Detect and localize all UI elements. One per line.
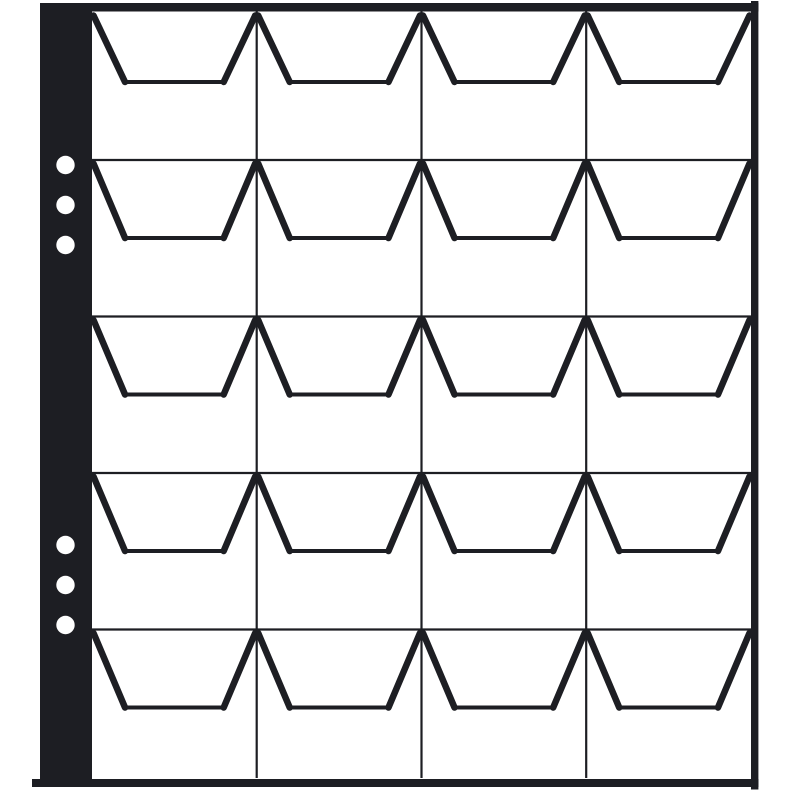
- punch-hole: [56, 156, 74, 174]
- punch-hole: [56, 576, 74, 594]
- page-top-edge: [40, 3, 759, 12]
- binder-strip: [40, 3, 92, 787]
- page-right-edge: [751, 1, 758, 790]
- punch-hole: [56, 536, 74, 554]
- punch-hole: [56, 236, 74, 254]
- punch-hole: [56, 196, 74, 214]
- page-bottom-edge: [32, 779, 759, 787]
- coin-pocket-page-illustration: [0, 0, 800, 800]
- product-illustration: [0, 0, 800, 800]
- punch-hole: [56, 616, 74, 634]
